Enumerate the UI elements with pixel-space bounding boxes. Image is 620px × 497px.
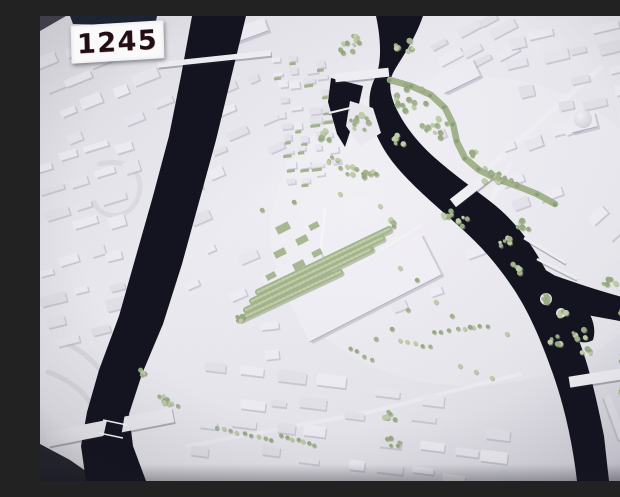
- photo-effects-layer: [40, 16, 620, 481]
- model-scene-svg: [40, 16, 620, 481]
- city-model-photo: 1245: [40, 16, 620, 481]
- bottom-edge-shade: [40, 464, 620, 481]
- model-year-text: 1245: [77, 24, 159, 60]
- vignette: [40, 16, 620, 481]
- model-year-card: 1245: [71, 20, 165, 64]
